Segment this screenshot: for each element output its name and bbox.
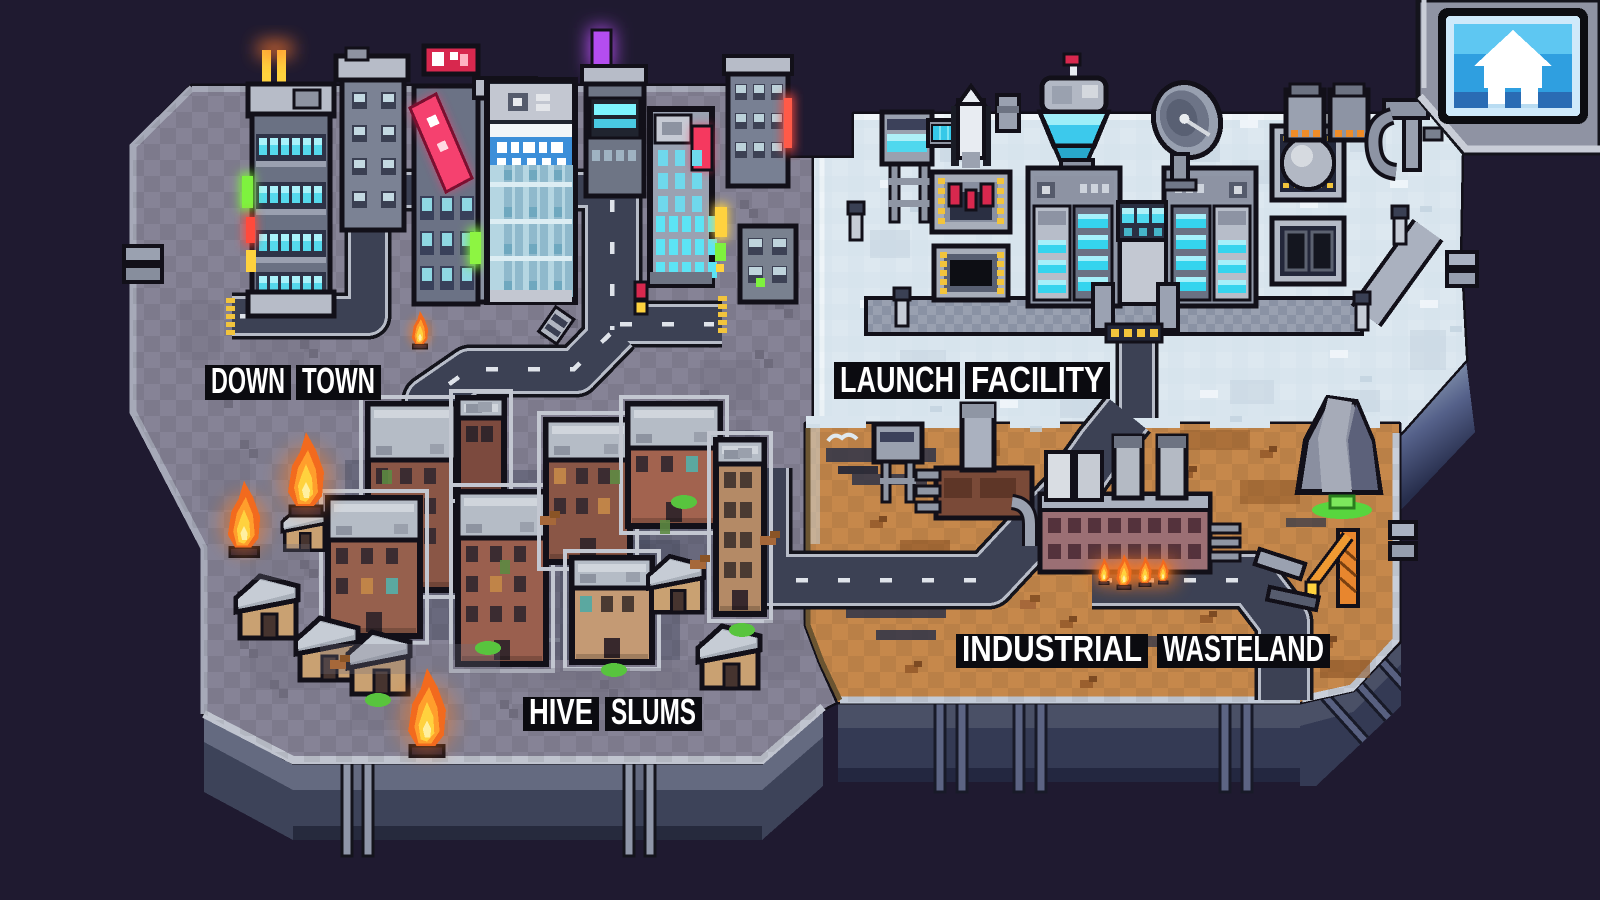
svg-text:LAUNCH: LAUNCH [840, 359, 954, 400]
svg-text:SLUMS: SLUMS [611, 691, 696, 732]
svg-text:DOWN: DOWN [211, 360, 285, 401]
svg-text:INDUSTRIAL: INDUSTRIAL [962, 628, 1142, 669]
svg-text:HIVE: HIVE [529, 691, 593, 732]
svg-text:WASTELAND: WASTELAND [1163, 628, 1324, 669]
svg-text:TOWN: TOWN [302, 360, 375, 401]
svg-text:FACILITY: FACILITY [971, 359, 1104, 400]
